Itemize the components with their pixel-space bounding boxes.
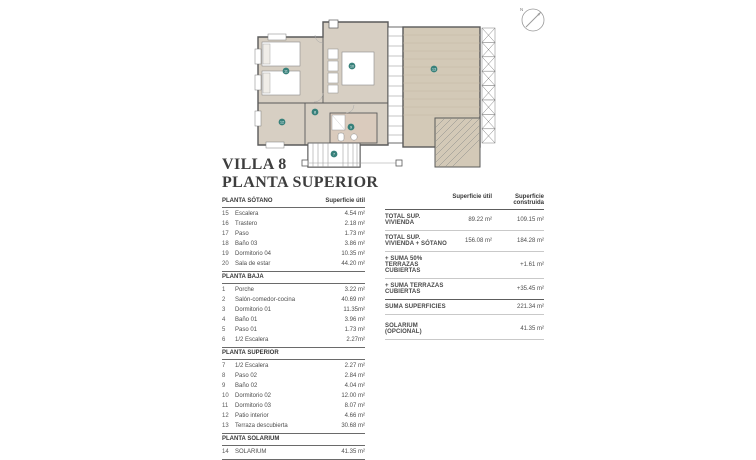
row-label: Dormitorio 02 <box>235 393 325 399</box>
row-number: 19 <box>222 251 235 257</box>
table-row: 20 Sala de estar 44.20 m² <box>222 259 365 269</box>
marker-dormitorio-03: 11 <box>283 68 290 75</box>
row-value: 10.35 m² <box>325 251 365 257</box>
table-row: 2 Salón-comedor-cocina 40.69 m² <box>222 295 365 305</box>
row-number: 10 <box>222 393 235 399</box>
marker-dormitorio-02: 10 <box>349 63 356 70</box>
summary-row-label: TOTAL SUP. VIVIENDA <box>385 214 450 226</box>
row-number: 18 <box>222 241 235 247</box>
section-header: PLANTA BAJA <box>222 274 264 280</box>
row-label: Escalera <box>235 211 325 217</box>
summary-row: + SUMA 50% TERRAZAS CUBIERTAS +1.61 m² <box>385 252 544 279</box>
section-planta-sotano: PLANTA SÓTANO Superficie útil 15 Escaler… <box>222 196 365 272</box>
section-header: PLANTA SOLARIUM <box>222 436 279 442</box>
row-number: 15 <box>222 211 235 217</box>
room-area-table: PLANTA SÓTANO Superficie útil 15 Escaler… <box>222 196 365 460</box>
summary-row: TOTAL SUP. VIVIENDA + SÓTANO 156.08 m² 1… <box>385 231 544 252</box>
column-header-superficie-util: Superficie útil <box>325 198 365 204</box>
table-row: 17 Paso 1.73 m² <box>222 229 365 239</box>
row-number: 4 <box>222 317 235 323</box>
row-label: Dormitorio 01 <box>235 307 325 313</box>
summary-row-label: SUMA SUPERFICIES <box>385 304 450 310</box>
marker-terraza: 13 <box>431 66 438 73</box>
row-label: Porche <box>235 287 325 293</box>
row-label: Salón-comedor-cocina <box>235 297 325 303</box>
row-label: Dormitorio 03 <box>235 403 325 409</box>
row-number: 3 <box>222 307 235 313</box>
plan-sheet-page: { "title": { "line1": "VILLA 8", "line2"… <box>0 0 756 443</box>
row-number: 5 <box>222 327 235 333</box>
svg-text:13: 13 <box>432 67 436 71</box>
table-row: 8 Paso 02 2.84 m² <box>222 371 365 381</box>
header-superficie-util: Superficie útil <box>450 194 492 206</box>
row-value: 11.35m² <box>325 307 365 313</box>
page-title: VILLA 8 PLANTA SUPERIOR <box>222 156 378 192</box>
table-row: 9 Baño 02 4.04 m² <box>222 381 365 391</box>
row-value: 4.54 m² <box>325 211 365 217</box>
row-value: 30.68 m² <box>325 423 365 429</box>
row-number: 2 <box>222 297 235 303</box>
row-value: 3.22 m² <box>325 287 365 293</box>
section-rows: 7 1/2 Escalera 2.27 m² 8 Paso 02 2.84 m²… <box>222 361 365 431</box>
row-number: 8 <box>222 373 235 379</box>
row-label: Patio interior <box>235 413 325 419</box>
summary-row-label: TOTAL SUP. VIVIENDA + SÓTANO <box>385 235 450 247</box>
row-number: 9 <box>222 383 235 389</box>
svg-text:11: 11 <box>284 69 288 73</box>
row-value: 4.66 m² <box>325 413 365 419</box>
table-row: 1 Porche 3.22 m² <box>222 285 365 295</box>
table-row: 18 Baño 03 3.86 m² <box>222 239 365 249</box>
row-label: SOLARIUM <box>235 449 325 455</box>
summary-row-util: 156.08 m² <box>450 238 492 244</box>
summary-row-construida: +1.61 m² <box>492 262 544 268</box>
row-value: 40.69 m² <box>325 297 365 303</box>
marker-bano: 9 <box>348 124 355 131</box>
row-value: 44.20 m² <box>325 261 365 267</box>
row-number: 6 <box>222 337 235 343</box>
row-label: Baño 02 <box>235 383 325 389</box>
summary-row-label: SOLARIUM (OPCIONAL) <box>385 323 450 335</box>
row-value: 3.96 m² <box>325 317 365 323</box>
marker-paso: 8 <box>312 109 319 116</box>
compass-icon: N <box>520 7 544 31</box>
row-number: 16 <box>222 221 235 227</box>
row-value: 2.27 m² <box>325 363 365 369</box>
row-label: Baño 01 <box>235 317 325 323</box>
table-row: 19 Dormitorio 04 10.35 m² <box>222 249 365 259</box>
svg-text:10: 10 <box>350 64 354 68</box>
row-number: 13 <box>222 423 235 429</box>
row-label: Dormitorio 04 <box>235 251 325 257</box>
table-row: 10 Dormitorio 02 12.00 m² <box>222 391 365 401</box>
row-value: 2.18 m² <box>325 221 365 227</box>
row-label: Paso 01 <box>235 327 325 333</box>
table-row: 4 Baño 01 3.96 m² <box>222 315 365 325</box>
title-planta: PLANTA SUPERIOR <box>222 174 378 192</box>
row-label: Baño 03 <box>235 241 325 247</box>
floor-plan: 7 8 9 10 11 12 13 N <box>250 3 550 171</box>
summary-row: SUMA SUPERFICIES 221.34 m² <box>385 300 544 315</box>
row-value: 2.84 m² <box>325 373 365 379</box>
summary-row-label: + SUMA 50% TERRAZAS CUBIERTAS <box>385 256 450 274</box>
summary-row-construida: 109.15 m² <box>492 217 544 223</box>
section-planta-baja: PLANTA BAJA 1 Porche 3.22 m² 2 Salón-com… <box>222 272 365 348</box>
summary-row: + SUMA TERRAZAS CUBIERTAS +35.45 m² <box>385 279 544 300</box>
row-value: 41.35 m² <box>325 449 365 455</box>
section-planta-superior: PLANTA SUPERIOR 7 1/2 Escalera 2.27 m² 8… <box>222 348 365 434</box>
pergola-band <box>482 28 495 143</box>
row-value: 1.73 m² <box>325 327 365 333</box>
table-row: 7 1/2 Escalera 2.27 m² <box>222 361 365 371</box>
summary-header-row: Superficie útil Superficie construida <box>385 192 544 210</box>
table-row: 5 Paso 01 1.73 m² <box>222 325 365 335</box>
summary-table: Superficie útil Superficie construida TO… <box>385 192 544 340</box>
summary-row-util: 89.22 m² <box>450 217 492 223</box>
row-number: 12 <box>222 413 235 419</box>
row-label: Trastero <box>235 221 325 227</box>
summary-row-construida: +35.45 m² <box>492 286 544 292</box>
floor-plan-drawing: 7 8 9 10 11 12 13 N <box>250 3 550 171</box>
section-header: PLANTA SUPERIOR <box>222 350 279 356</box>
header-superficie-construida: Superficie construida <box>492 194 544 206</box>
table-row: 3 Dormitorio 01 11.35m² <box>222 305 365 315</box>
table-row: 14 SOLARIUM 41.35 m² <box>222 447 365 457</box>
row-number: 7 <box>222 363 235 369</box>
row-number: 17 <box>222 231 235 237</box>
row-value: 8.07 m² <box>325 403 365 409</box>
table-row: 16 Trastero 2.18 m² <box>222 219 365 229</box>
section-planta-solarium: PLANTA SOLARIUM 14 SOLARIUM 41.35 m² <box>222 434 365 460</box>
summary-row-construida: 184.28 m² <box>492 238 544 244</box>
table-row: 12 Patio interior 4.66 m² <box>222 411 365 421</box>
row-label: Paso 02 <box>235 373 325 379</box>
row-label: 1/2 Escalera <box>235 337 325 343</box>
summary-row: TOTAL SUP. VIVIENDA 89.22 m² 109.15 m² <box>385 210 544 231</box>
table-row: 11 Dormitorio 03 8.07 m² <box>222 401 365 411</box>
compass-north-label: N <box>520 7 523 12</box>
summary-row: SOLARIUM (OPCIONAL) 41.35 m² <box>385 319 544 340</box>
svg-text:8: 8 <box>314 110 316 114</box>
row-label: 1/2 Escalera <box>235 363 325 369</box>
row-value: 4.04 m² <box>325 383 365 389</box>
patio-interior-strip <box>388 27 403 143</box>
row-value: 1.73 m² <box>325 231 365 237</box>
section-rows: 14 SOLARIUM 41.35 m² <box>222 447 365 457</box>
row-label: Terraza descubierta <box>235 423 325 429</box>
row-label: Sala de estar <box>235 261 325 267</box>
section-header: PLANTA SÓTANO <box>222 198 273 204</box>
row-number: 14 <box>222 449 235 455</box>
row-number: 20 <box>222 261 235 267</box>
table-row: 15 Escalera 4.54 m² <box>222 209 365 219</box>
summary-row-construida: 221.34 m² <box>492 304 544 310</box>
row-number: 11 <box>222 403 235 409</box>
title-villa: VILLA 8 <box>222 156 378 174</box>
row-label: Paso <box>235 231 325 237</box>
svg-text:9: 9 <box>350 125 352 129</box>
summary-row-label: + SUMA TERRAZAS CUBIERTAS <box>385 283 450 295</box>
table-row: 13 Terraza descubierta 30.68 m² <box>222 421 365 431</box>
summary-row-construida: 41.35 m² <box>492 326 544 332</box>
row-value: 12.00 m² <box>325 393 365 399</box>
row-value: 3.86 m² <box>325 241 365 247</box>
svg-text:12: 12 <box>280 120 284 124</box>
section-rows: 1 Porche 3.22 m² 2 Salón-comedor-cocina … <box>222 285 365 345</box>
section-rows: 15 Escalera 4.54 m² 16 Trastero 2.18 m² … <box>222 209 365 269</box>
table-row: 6 1/2 Escalera 2.27m² <box>222 335 365 345</box>
row-value: 2.27m² <box>325 337 365 343</box>
summary-rows: TOTAL SUP. VIVIENDA 89.22 m² 109.15 m² T… <box>385 210 544 340</box>
row-number: 1 <box>222 287 235 293</box>
marker-patio-interior: 12 <box>279 119 286 126</box>
